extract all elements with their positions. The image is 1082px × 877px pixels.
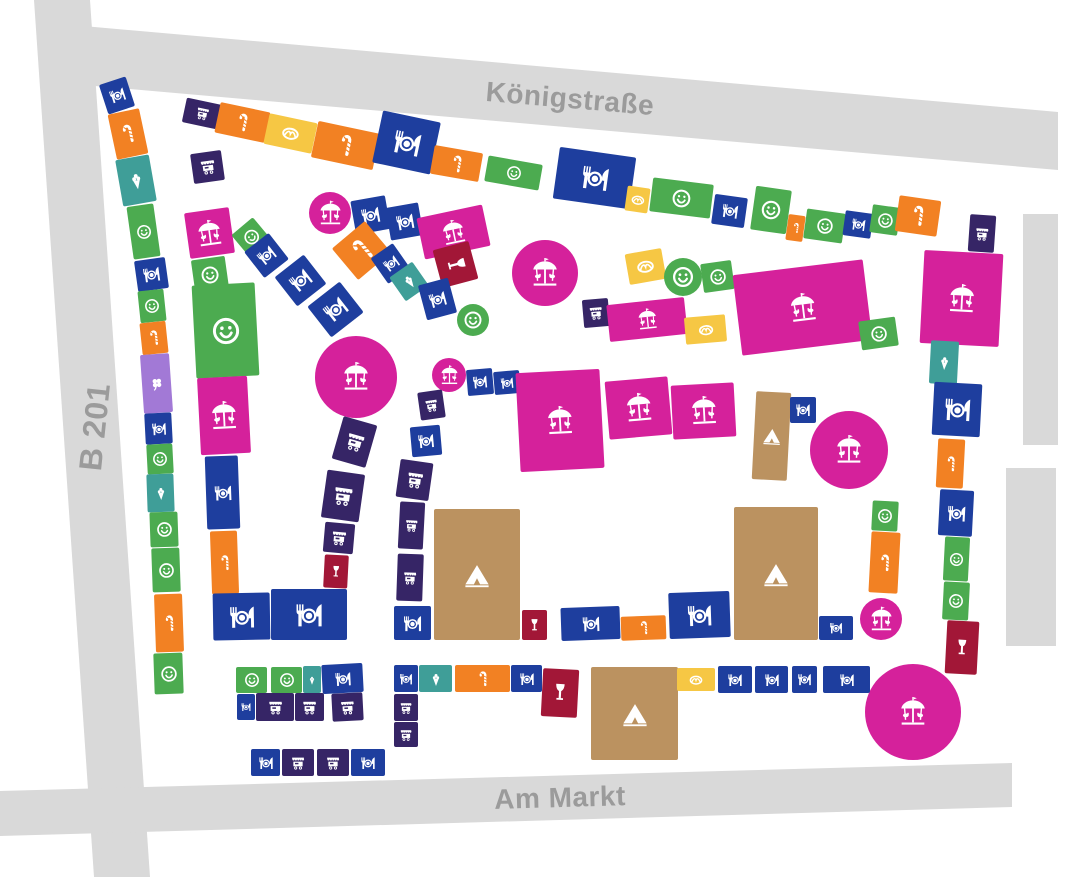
food-icon: [211, 481, 234, 504]
stall-food[interactable]: [205, 455, 241, 529]
cart-icon: [401, 568, 420, 587]
street-side-street-upper: [1023, 214, 1058, 445]
cart-icon: [300, 698, 319, 717]
stall-cart[interactable]: [394, 694, 418, 721]
food-icon: [398, 671, 414, 687]
stall-smiley[interactable]: [192, 282, 260, 378]
smiley-icon: [874, 209, 895, 230]
stall-carousel[interactable]: [860, 598, 902, 640]
cart-icon: [324, 754, 342, 772]
clover-icon: [146, 373, 167, 394]
pretzel-icon: [696, 320, 716, 340]
cart-icon: [192, 103, 212, 123]
food-icon: [415, 430, 437, 452]
tent-icon: [759, 557, 793, 591]
stall-candycane[interactable]: [455, 665, 510, 692]
candycane-icon: [159, 613, 179, 633]
food-icon: [718, 200, 741, 223]
carousel-icon: [438, 364, 461, 387]
stall-food[interactable]: [553, 147, 636, 209]
stall-food[interactable]: [271, 589, 347, 640]
candycane-icon: [115, 121, 141, 147]
candycane-icon: [144, 328, 164, 348]
stall-food[interactable]: [251, 749, 280, 776]
food-icon: [726, 671, 744, 689]
candycane-icon: [789, 221, 803, 235]
stall-cart[interactable]: [398, 501, 425, 549]
candycane-icon: [941, 454, 960, 473]
food-icon: [848, 215, 867, 234]
wine-icon: [328, 563, 345, 580]
stall-smiley[interactable]: [271, 667, 302, 693]
stall-cart[interactable]: [295, 693, 324, 721]
icecream-icon: [934, 353, 954, 373]
stall-tent[interactable]: [752, 391, 792, 481]
stall-food[interactable]: [410, 425, 443, 458]
icecream-icon: [123, 167, 150, 194]
food-icon: [470, 372, 490, 392]
food-icon: [140, 263, 164, 287]
food-icon: [796, 671, 813, 688]
smiley-icon: [133, 221, 153, 241]
stall-candycane[interactable]: [785, 214, 805, 242]
cart-icon: [328, 481, 357, 510]
pretzel-icon: [688, 672, 704, 688]
cart-icon: [422, 395, 441, 414]
pretzel-icon: [633, 254, 657, 278]
stall-tent[interactable]: [591, 667, 678, 760]
cart-icon: [398, 727, 414, 743]
stall-food[interactable]: [144, 412, 173, 444]
fairground-map: KönigstraßeB 201Am Markt: [0, 0, 1082, 877]
food-icon: [292, 598, 326, 632]
cart-icon: [398, 700, 414, 716]
stall-food[interactable]: [321, 663, 363, 694]
candycane-icon: [230, 110, 255, 135]
stall-cart[interactable]: [968, 214, 997, 253]
smiley-icon: [706, 265, 729, 288]
smiley-icon: [669, 185, 695, 211]
stall-food[interactable]: [213, 593, 271, 641]
pretzel-icon: [278, 121, 303, 146]
stall-candycane[interactable]: [895, 195, 942, 236]
carousel-icon: [633, 306, 660, 333]
stall-carousel[interactable]: [432, 358, 466, 392]
food-icon: [940, 392, 975, 427]
candycane-icon: [904, 202, 931, 229]
food-icon: [518, 670, 536, 688]
stall-cart[interactable]: [323, 522, 356, 555]
stall-candycane[interactable]: [621, 615, 667, 641]
stall-carousel[interactable]: [184, 207, 235, 259]
stall-candycane[interactable]: [936, 438, 966, 488]
food-icon: [683, 599, 715, 631]
food-icon: [763, 671, 781, 689]
smiley-icon: [867, 322, 890, 345]
stall-smiley[interactable]: [942, 581, 970, 620]
stall-cart[interactable]: [190, 150, 225, 184]
candycane-icon: [215, 553, 234, 572]
stall-carousel[interactable]: [197, 376, 251, 456]
stall-wine[interactable]: [522, 610, 547, 640]
wine-icon: [526, 617, 543, 634]
candycane-icon: [331, 131, 361, 161]
stall-smiley[interactable]: [457, 304, 489, 336]
stall-smiley[interactable]: [146, 443, 174, 474]
stall-cart[interactable]: [417, 389, 446, 420]
tent-icon: [759, 423, 784, 448]
smiley-icon: [154, 520, 174, 540]
stall-food[interactable]: [823, 666, 870, 693]
stall-wine[interactable]: [541, 668, 579, 718]
stall-candycane[interactable]: [210, 531, 239, 595]
carousel-icon: [192, 215, 227, 250]
stall-smiley[interactable]: [664, 258, 702, 296]
food-icon: [828, 620, 844, 636]
stall-carousel[interactable]: [733, 259, 873, 355]
carousel-icon: [867, 605, 896, 634]
stall-food[interactable]: [351, 749, 385, 776]
carousel-icon: [316, 199, 345, 228]
cart-icon: [328, 527, 350, 549]
stall-carousel[interactable]: [515, 369, 604, 472]
carousel-icon: [528, 256, 562, 290]
food-icon: [794, 401, 812, 419]
food-icon: [359, 754, 377, 772]
carousel-icon: [944, 281, 980, 317]
stall-pretzel[interactable]: [684, 314, 727, 344]
stall-icecream[interactable]: [146, 474, 174, 513]
carousel-icon: [686, 393, 722, 429]
pretzel-icon: [628, 190, 646, 208]
stall-smiley[interactable]: [750, 186, 792, 235]
stall-candycane[interactable]: [139, 321, 168, 356]
stall-cart[interactable]: [321, 470, 365, 523]
stall-food[interactable]: [819, 616, 853, 640]
cart-icon: [403, 517, 421, 535]
food-icon: [401, 612, 424, 635]
stall-tent[interactable]: [734, 507, 818, 640]
icecream-icon: [306, 674, 318, 686]
food-icon: [838, 671, 856, 689]
food-icon: [579, 612, 602, 635]
cart-icon: [266, 698, 285, 717]
icecream-icon: [427, 670, 445, 688]
carousel-icon: [784, 289, 822, 327]
tent-icon: [460, 558, 494, 592]
carousel-icon: [206, 398, 242, 434]
food-icon: [386, 122, 426, 162]
carousel-icon: [542, 403, 578, 439]
food-icon: [317, 291, 355, 329]
stall-smiley[interactable]: [149, 512, 178, 548]
carousel-icon: [620, 390, 657, 427]
smiley-icon: [142, 296, 162, 316]
stall-smiley[interactable]: [151, 548, 181, 593]
smiley-icon: [278, 671, 296, 689]
stall-carousel[interactable]: [671, 382, 737, 439]
stall-smiley[interactable]: [943, 536, 970, 581]
stall-candycane[interactable]: [868, 531, 900, 593]
stall-pretzel[interactable]: [677, 668, 715, 691]
stall-smiley[interactable]: [236, 667, 267, 693]
stall-food[interactable]: [394, 665, 418, 692]
cart-icon: [586, 303, 606, 323]
food-icon: [252, 241, 281, 270]
stall-food[interactable]: [755, 666, 788, 693]
stall-food[interactable]: [466, 368, 494, 396]
stall-icecream[interactable]: [303, 666, 321, 693]
candycane-icon: [635, 620, 652, 637]
carousel-icon: [339, 360, 373, 394]
stall-food[interactable]: [932, 382, 983, 437]
stall-food[interactable]: [718, 666, 752, 693]
stall-food[interactable]: [668, 591, 731, 639]
stall-smiley[interactable]: [871, 500, 899, 531]
stall-pretzel[interactable]: [625, 248, 667, 285]
smiley-icon: [670, 264, 696, 290]
smiley-icon: [151, 450, 170, 469]
stall-icecream[interactable]: [419, 665, 452, 692]
candycane-icon: [874, 552, 895, 573]
cart-icon: [402, 468, 427, 493]
street-label-am-markt: Am Markt: [494, 780, 626, 816]
smiley-icon: [757, 196, 784, 223]
stall-carousel[interactable]: [920, 250, 1004, 347]
street-side-street-lower: [1006, 468, 1056, 646]
wine-icon: [547, 680, 572, 705]
stall-cart[interactable]: [331, 692, 363, 722]
stall-carousel[interactable]: [605, 376, 673, 439]
stall-icecream[interactable]: [929, 340, 959, 384]
stall-cart[interactable]: [394, 722, 418, 747]
stall-food[interactable]: [938, 489, 974, 537]
smiley-icon: [876, 507, 895, 526]
stall-carousel[interactable]: [315, 336, 397, 418]
cart-icon: [972, 224, 991, 243]
smiley-icon: [208, 313, 244, 349]
stall-cart[interactable]: [317, 749, 349, 776]
stall-carousel[interactable]: [512, 240, 578, 306]
stall-smiley[interactable]: [803, 208, 846, 243]
stall-carousel[interactable]: [810, 411, 888, 489]
food-icon: [392, 209, 417, 234]
stall-food[interactable]: [511, 665, 542, 692]
food-icon: [240, 701, 252, 713]
stall-tent[interactable]: [434, 509, 520, 640]
carousel-icon: [832, 433, 866, 467]
stall-smiley[interactable]: [649, 177, 714, 218]
food-icon: [575, 159, 613, 197]
icecream-icon: [151, 484, 170, 503]
food-icon: [498, 374, 515, 391]
stall-food[interactable]: [394, 606, 431, 640]
stall-smiley[interactable]: [858, 317, 899, 351]
food-icon: [283, 263, 318, 298]
stall-food[interactable]: [790, 397, 816, 423]
food-icon: [944, 501, 968, 525]
stall-wine[interactable]: [323, 554, 349, 588]
stall-cart[interactable]: [396, 459, 434, 501]
stall-food[interactable]: [711, 194, 748, 228]
stall-cart[interactable]: [282, 749, 314, 776]
stall-cart[interactable]: [256, 693, 294, 721]
smiley-icon: [503, 163, 524, 184]
food-icon: [105, 84, 129, 108]
stall-smiley[interactable]: [137, 289, 166, 324]
food-icon: [425, 286, 451, 312]
stall-smiley[interactable]: [700, 260, 735, 293]
cart-icon: [338, 697, 358, 717]
cart-icon: [340, 427, 370, 457]
stall-cart[interactable]: [582, 298, 610, 328]
food-icon: [225, 600, 258, 633]
smiley-icon: [156, 560, 176, 580]
stall-food[interactable]: [237, 694, 255, 720]
stall-food[interactable]: [792, 666, 817, 693]
food-icon: [332, 668, 353, 689]
food-icon: [257, 754, 275, 772]
carousel-icon: [896, 695, 930, 729]
stall-cart[interactable]: [396, 554, 424, 602]
stall-carousel[interactable]: [309, 192, 351, 234]
candycane-icon: [445, 152, 468, 175]
wine-icon: [440, 249, 471, 280]
stall-food[interactable]: [134, 257, 169, 292]
cart-icon: [289, 754, 307, 772]
smiley-icon: [158, 663, 179, 684]
smiley-icon: [948, 550, 966, 568]
stall-candycane[interactable]: [154, 594, 184, 653]
stall-food[interactable]: [560, 606, 620, 641]
food-icon: [149, 419, 168, 438]
cart-icon: [196, 156, 219, 179]
smiley-icon: [462, 309, 484, 331]
tent-icon: [618, 697, 652, 731]
stall-pretzel[interactable]: [624, 186, 650, 214]
stall-wine[interactable]: [945, 620, 980, 675]
stall-food[interactable]: [842, 210, 873, 239]
stall-clover[interactable]: [140, 353, 173, 414]
smiley-icon: [947, 592, 966, 611]
smiley-icon: [243, 671, 261, 689]
candycane-icon: [474, 670, 492, 688]
stall-smiley[interactable]: [153, 653, 183, 695]
stall-carousel[interactable]: [865, 664, 961, 760]
smiley-icon: [813, 215, 836, 238]
smiley-icon: [198, 262, 223, 287]
wine-icon: [950, 636, 973, 659]
